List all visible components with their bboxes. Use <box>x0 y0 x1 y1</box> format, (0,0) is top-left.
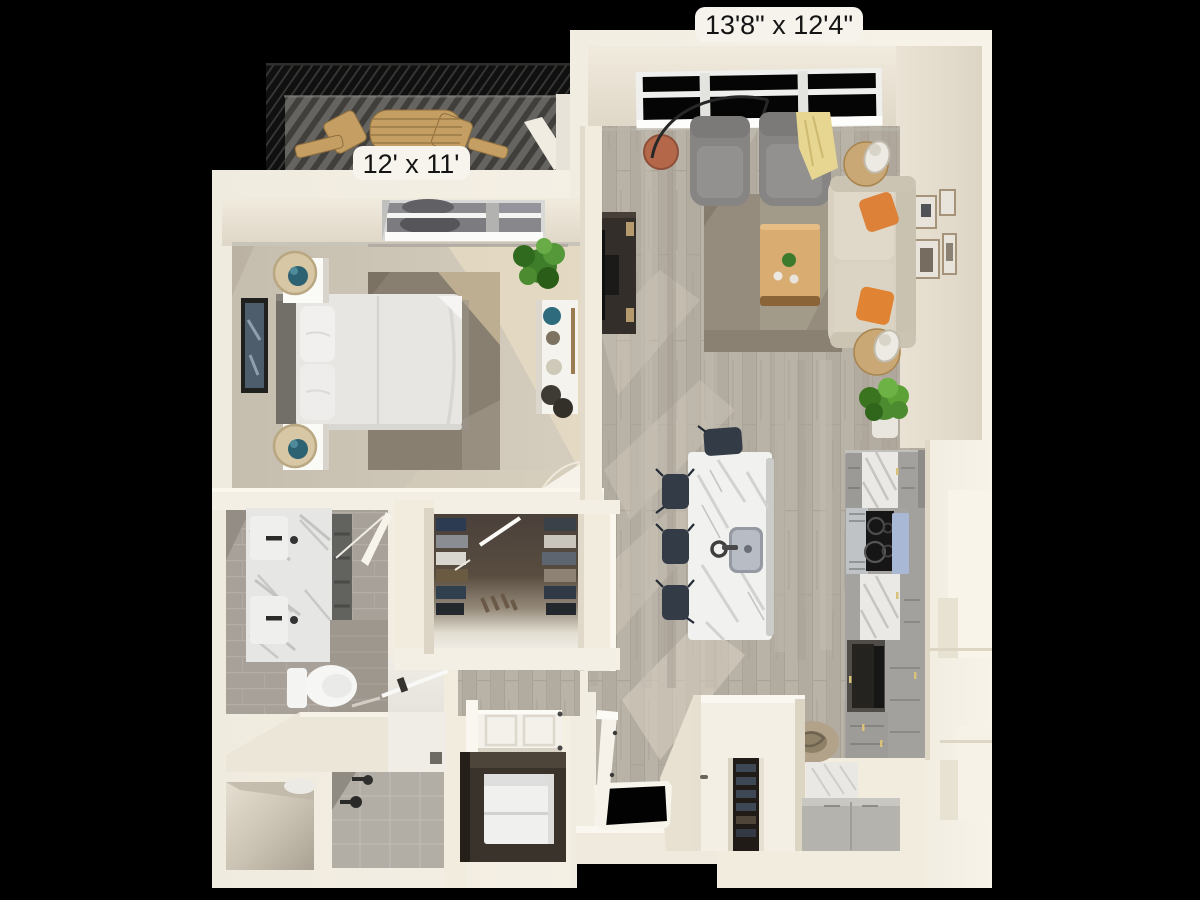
svg-text:12' x 11': 12' x 11' <box>363 149 460 179</box>
svg-text:13'8" x 12'4": 13'8" x 12'4" <box>705 10 853 40</box>
